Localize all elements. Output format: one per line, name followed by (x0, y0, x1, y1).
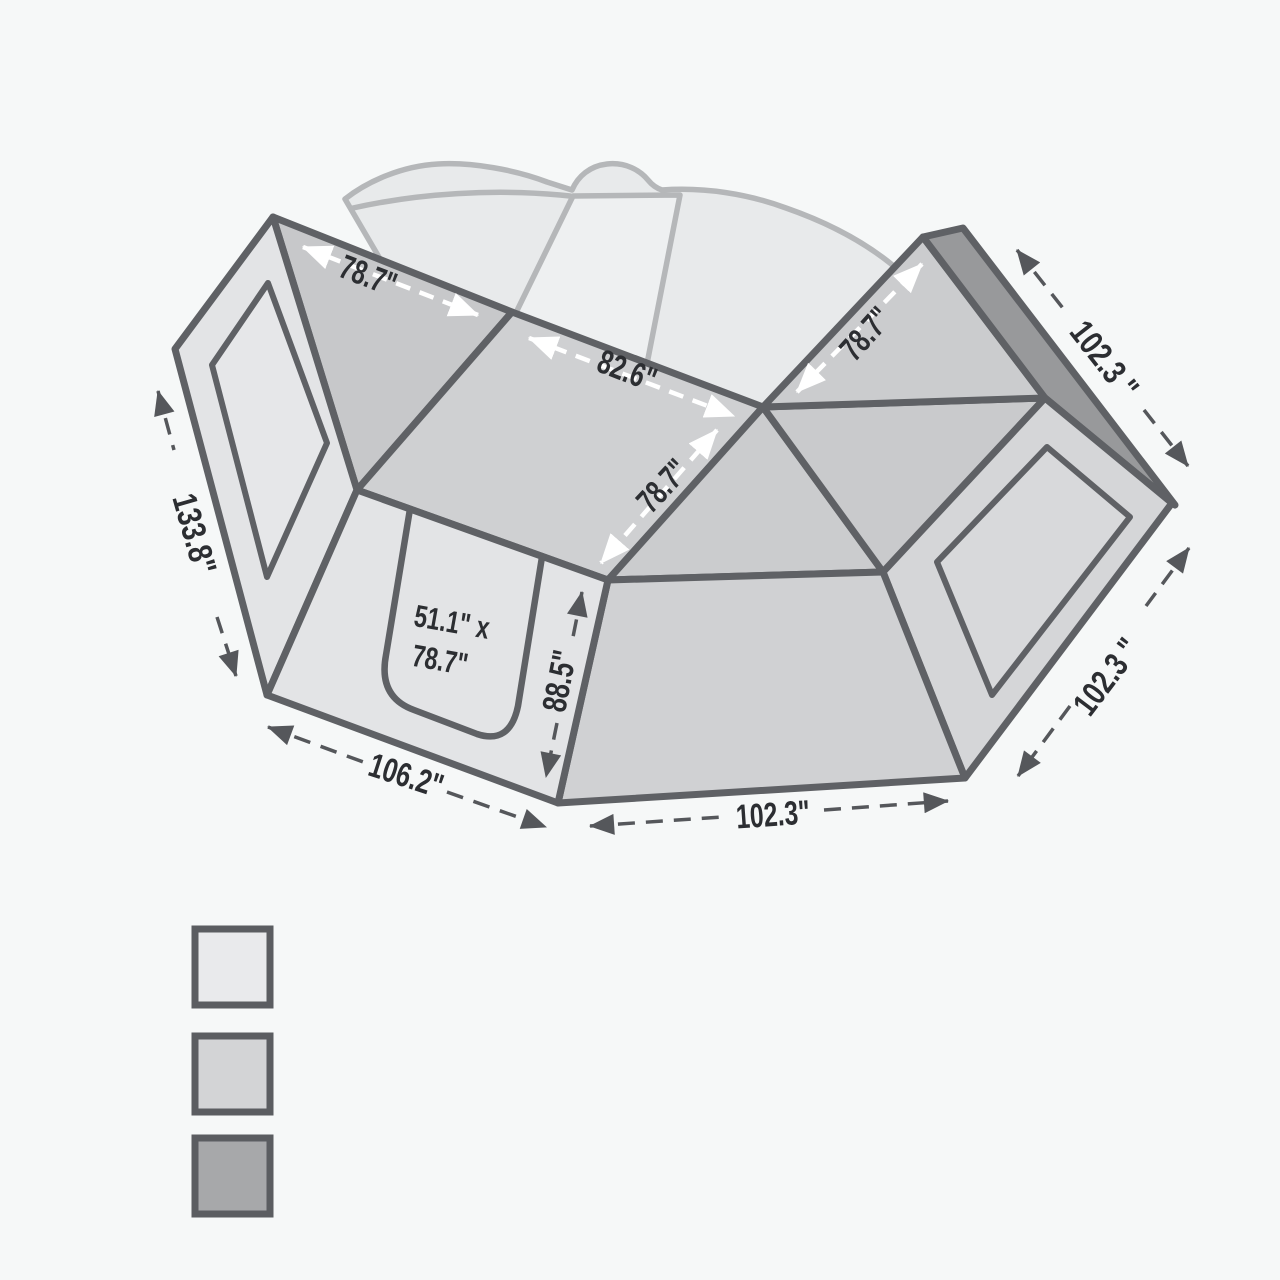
dim-bottom-front-arrow-a (590, 817, 722, 826)
legend-swatch-medium (195, 1036, 270, 1112)
dim-side-left-arrow-a (158, 391, 174, 450)
diagram-svg: 78.7" 82.6" 78.7" 78.7" 133.8" 106.2" (0, 0, 1280, 1280)
dim-bottom-front-arrow-b (824, 801, 948, 810)
legend-swatch-dark (195, 1138, 270, 1214)
dim-bottom-front-label: 102.3" (735, 793, 811, 836)
dim-right-side-arrow-a (1146, 548, 1189, 606)
dim-right-side-label: 102.3 " (1066, 631, 1148, 723)
legend-swatches (195, 929, 270, 1214)
dim-side-left-arrow-b (217, 617, 236, 676)
awning-dimension-diagram: 78.7" 82.6" 78.7" 78.7" 133.8" 106.2" (0, 0, 1280, 1280)
dim-right-top-arrow-b (1144, 410, 1188, 466)
dim-bottom-left-arrow-b (447, 792, 546, 827)
legend-swatch-light (195, 929, 270, 1005)
dim-right-side-arrow-b (1018, 706, 1070, 776)
dim-bottom-left-arrow-a (268, 727, 366, 763)
